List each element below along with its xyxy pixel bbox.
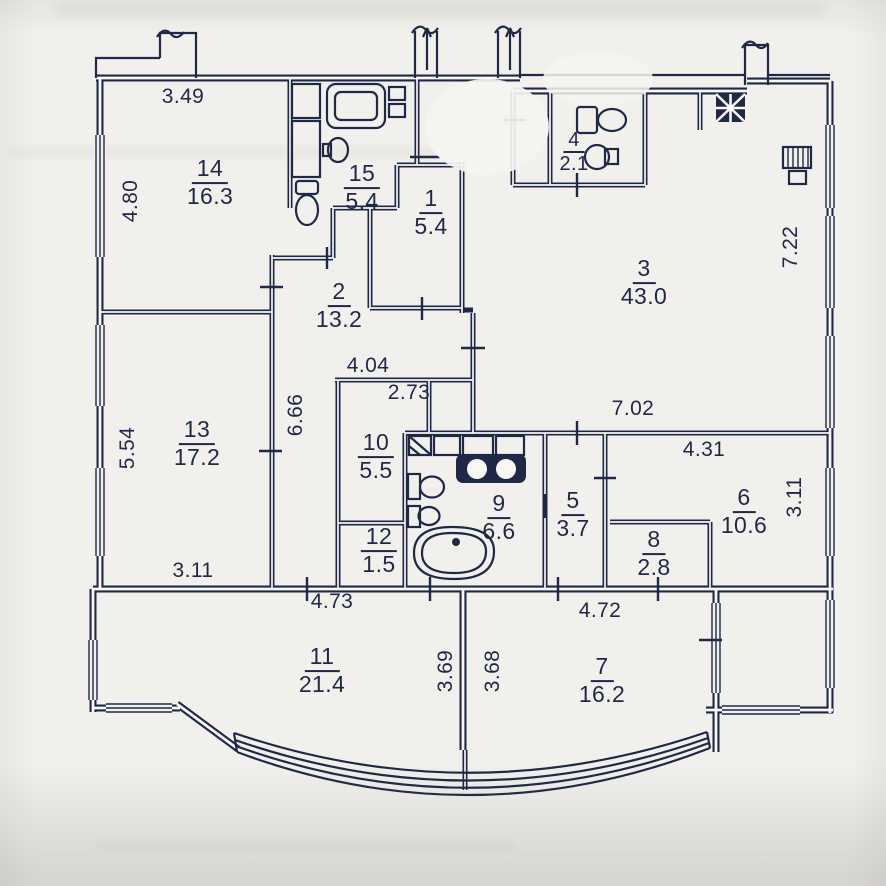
toilet-icon bbox=[598, 109, 626, 131]
dim-room14-height: 4.80 bbox=[119, 180, 143, 222]
room-label-10: 105.5 bbox=[358, 431, 394, 483]
room-label-9: 96.6 bbox=[482, 492, 515, 544]
dim-room3-width: 7.02 bbox=[612, 397, 654, 421]
dim-room13-height: 5.54 bbox=[116, 427, 140, 469]
room-label-4: 42.1 bbox=[559, 130, 588, 174]
cabinet-icon bbox=[292, 121, 320, 177]
window-icon bbox=[94, 325, 106, 406]
window-icon bbox=[94, 468, 106, 556]
shelf-hatch bbox=[409, 436, 431, 455]
dim-room11-width: 4.73 bbox=[311, 590, 353, 614]
window-icon bbox=[94, 135, 106, 257]
dim-corridor-height: 6.66 bbox=[284, 394, 308, 436]
dim-room10-width: 2.73 bbox=[388, 381, 430, 405]
window-icon bbox=[824, 468, 836, 556]
window-icon bbox=[824, 336, 836, 428]
sink-basin-icon bbox=[467, 459, 487, 479]
bidet-icon bbox=[419, 507, 440, 525]
drain-icon bbox=[452, 538, 460, 546]
up-arrow-icon bbox=[506, 28, 514, 70]
toilet-icon bbox=[408, 474, 420, 499]
window-icon bbox=[824, 125, 836, 208]
room-label-12: 121.5 bbox=[361, 525, 397, 577]
window-icon bbox=[824, 216, 836, 308]
room-label-14: 1416.3 bbox=[187, 157, 233, 209]
cabinet-icon bbox=[292, 84, 320, 118]
toilet-icon bbox=[420, 477, 444, 498]
dim-room6-right-height: 3.11 bbox=[783, 477, 807, 518]
toilet-icon bbox=[296, 181, 318, 194]
service-icons bbox=[716, 94, 811, 184]
dim-room13-width: 3.11 bbox=[173, 559, 214, 583]
room-label-3: 343.0 bbox=[621, 257, 667, 309]
window-icon bbox=[722, 704, 800, 716]
room-label-7: 716.2 bbox=[579, 655, 625, 707]
dim-room7-height: 3.68 bbox=[481, 650, 505, 692]
dim-room14-width: 3.49 bbox=[162, 85, 204, 109]
shower-tray-inner bbox=[335, 92, 377, 120]
dim-room7-width: 4.72 bbox=[579, 599, 621, 623]
shelf-icon bbox=[434, 436, 460, 455]
radiator-icon bbox=[783, 147, 811, 168]
washing-machine-icon bbox=[389, 87, 405, 100]
shelf-icon bbox=[496, 436, 524, 455]
room-label-1: 15.4 bbox=[414, 187, 447, 239]
window-icon bbox=[710, 603, 722, 693]
room-label-15: 155.4 bbox=[344, 162, 380, 214]
up-arrow-icon bbox=[423, 28, 431, 70]
room-label-2: 213.2 bbox=[316, 280, 362, 332]
curved-glazing-icon bbox=[234, 732, 710, 795]
window-icon bbox=[106, 702, 172, 714]
room-label-8: 82.8 bbox=[637, 528, 670, 580]
dim-room3-right-height: 7.22 bbox=[779, 226, 803, 268]
dim-room11-height: 3.69 bbox=[434, 650, 458, 692]
room-label-6: 610.6 bbox=[721, 486, 767, 538]
room-label-11: 1121.4 bbox=[299, 645, 345, 697]
dim-room6-width: 4.31 bbox=[683, 438, 725, 462]
floor-plan-page: 1416.3 155.4 15.4 42.1 343.0 213.2 1317.… bbox=[0, 0, 886, 886]
room-label-5: 53.7 bbox=[556, 489, 589, 541]
radiator-icon bbox=[789, 171, 806, 184]
sink-basin-icon bbox=[496, 459, 516, 479]
dim-hall-width: 4.04 bbox=[347, 354, 389, 378]
shelf-icon bbox=[463, 436, 493, 455]
toilet-icon bbox=[296, 195, 318, 225]
window-icon bbox=[87, 640, 99, 700]
washing-machine-icon bbox=[389, 104, 405, 117]
window-icon bbox=[824, 600, 836, 688]
room-label-13: 1317.2 bbox=[174, 418, 220, 470]
